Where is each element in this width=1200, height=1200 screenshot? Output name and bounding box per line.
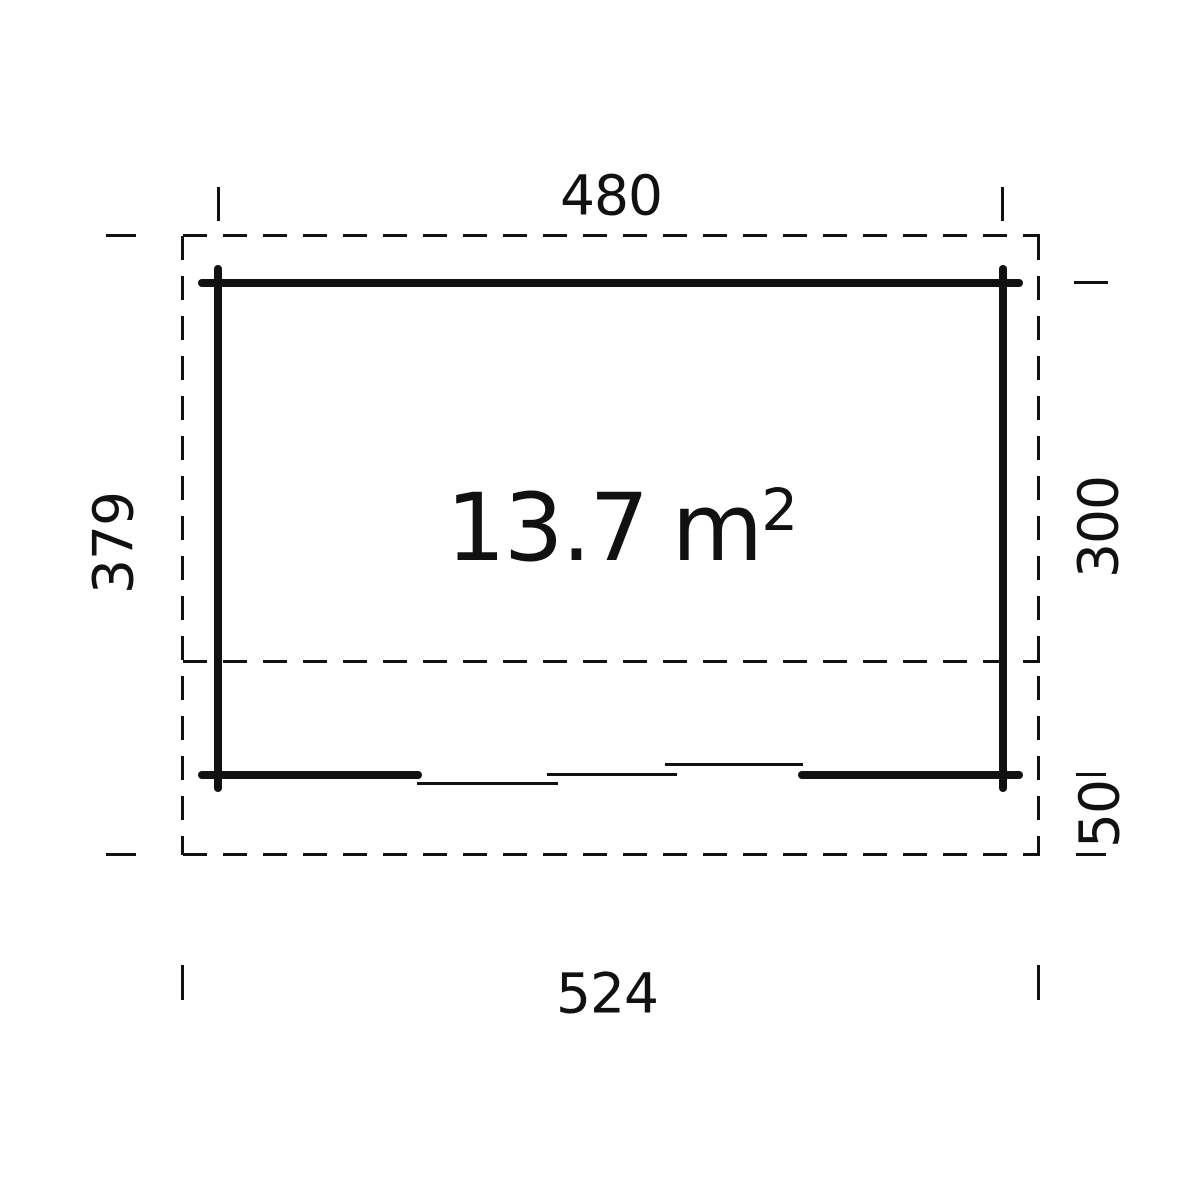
- tick-300-top: [1074, 281, 1108, 284]
- dim-label-left-depth: 379: [87, 492, 142, 594]
- roof-outline-top-dashed-line: [183, 234, 1040, 237]
- tick-480-left: [217, 187, 220, 221]
- area-unit-exponent: 2: [761, 476, 798, 544]
- area-unit: m: [672, 474, 762, 583]
- wall-left: [214, 265, 222, 792]
- dim-label-right-depth: 300: [1072, 476, 1127, 578]
- sliding-door-panel-left: [417, 782, 558, 785]
- dim-label-right-overhang: 50: [1073, 780, 1128, 848]
- tick-379-bottom: [106, 853, 136, 856]
- interior-dashed-line: [183, 660, 1040, 663]
- area-label: 13.7m2: [446, 482, 798, 576]
- tick-300-bottom: [1076, 773, 1106, 776]
- roof-outline-bottom-dashed-line: [183, 853, 1040, 856]
- dim-label-top-width: 480: [560, 169, 662, 224]
- roof-outline-right-dashed-line: [1037, 236, 1040, 855]
- area-value: 13.7: [446, 474, 647, 583]
- tick-480-right: [1001, 187, 1004, 221]
- roof-outline-left-dashed-line: [181, 236, 184, 855]
- wall-top: [198, 279, 1023, 287]
- wall-bottom-right-segment: [798, 771, 1023, 779]
- tick-379-top: [106, 234, 136, 237]
- floor-plan-canvas: 480 524 379 300 50 13.7m2: [0, 0, 1200, 1200]
- sliding-door-panel-middle: [547, 773, 677, 776]
- wall-right: [999, 265, 1007, 792]
- dim-label-bottom-width: 524: [556, 967, 658, 1022]
- tick-524-left: [181, 965, 184, 1000]
- sliding-door-panel-right: [665, 763, 803, 766]
- tick-50-bottom: [1076, 853, 1106, 856]
- tick-524-right: [1037, 965, 1040, 1000]
- wall-bottom-left-segment: [198, 771, 422, 779]
